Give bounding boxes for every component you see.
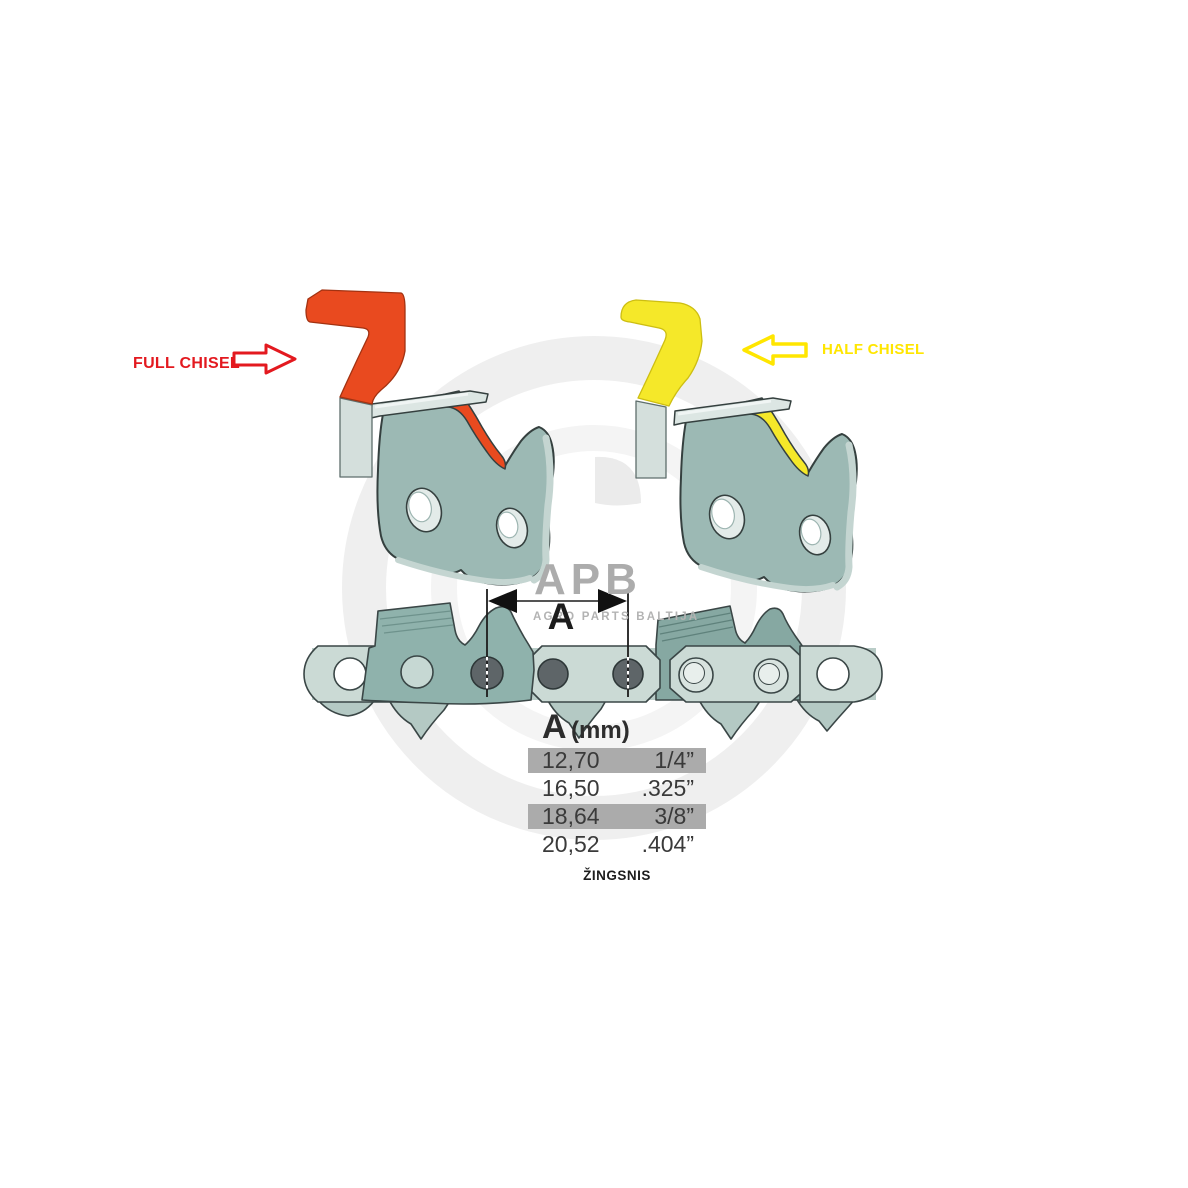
link-hole — [401, 656, 433, 688]
link-hole-inner — [684, 663, 705, 684]
product-diagram: APB AGRO PARTS BALTIJA FULL CHISEL HALF … — [0, 0, 1188, 1188]
pitch-dimension-letter: A — [531, 598, 591, 635]
pitch-inch: .404” — [642, 831, 694, 858]
rivet — [538, 659, 568, 689]
watermark-logo-mark — [595, 457, 641, 506]
pitch-table-header-unit: (mm) — [571, 717, 630, 744]
half-chisel-label: HALF CHISEL — [822, 341, 924, 358]
cutter-body — [377, 405, 553, 585]
pitch-mm: 12,70 — [542, 747, 600, 774]
pitch-mm: 18,64 — [542, 803, 600, 830]
pitch-row: 20,52 .404” — [528, 832, 706, 857]
pitch-inch: 1/4” — [654, 747, 694, 774]
profile-side-plate — [340, 398, 372, 477]
profile-side-plate — [636, 401, 666, 478]
pitch-mm: 20,52 — [542, 831, 600, 858]
pitch-table: A (mm) 12,70 1/4” 16,50 .325” 18,64 3/8”… — [528, 708, 706, 883]
link-hole-inner — [759, 664, 780, 685]
full-chisel-arrow-icon — [234, 345, 295, 373]
cutter-body — [680, 412, 856, 592]
pitch-row: 12,70 1/4” — [528, 748, 706, 773]
pitch-row: 18,64 3/8” — [528, 804, 706, 829]
link-hole — [334, 658, 366, 690]
full-chisel-label: FULL CHISEL — [133, 355, 240, 373]
pitch-table-header-letter: A — [542, 708, 567, 746]
pitch-table-header: A (mm) — [528, 708, 706, 748]
pitch-table-caption: ŽINGSNIS — [528, 868, 706, 883]
pitch-mm: 16,50 — [542, 775, 600, 802]
full-chisel-tooth-profile — [306, 290, 405, 404]
chain-cutter-near — [362, 603, 534, 704]
pitch-inch: .325” — [642, 775, 694, 802]
half-chisel-cutter-3d — [674, 398, 857, 592]
link-hole — [817, 658, 849, 690]
pitch-inch: 3/8” — [654, 803, 694, 830]
pitch-row: 16,50 .325” — [528, 776, 706, 801]
half-chisel-arrow-icon — [744, 336, 806, 364]
full-chisel-cutter-3d — [371, 391, 554, 585]
